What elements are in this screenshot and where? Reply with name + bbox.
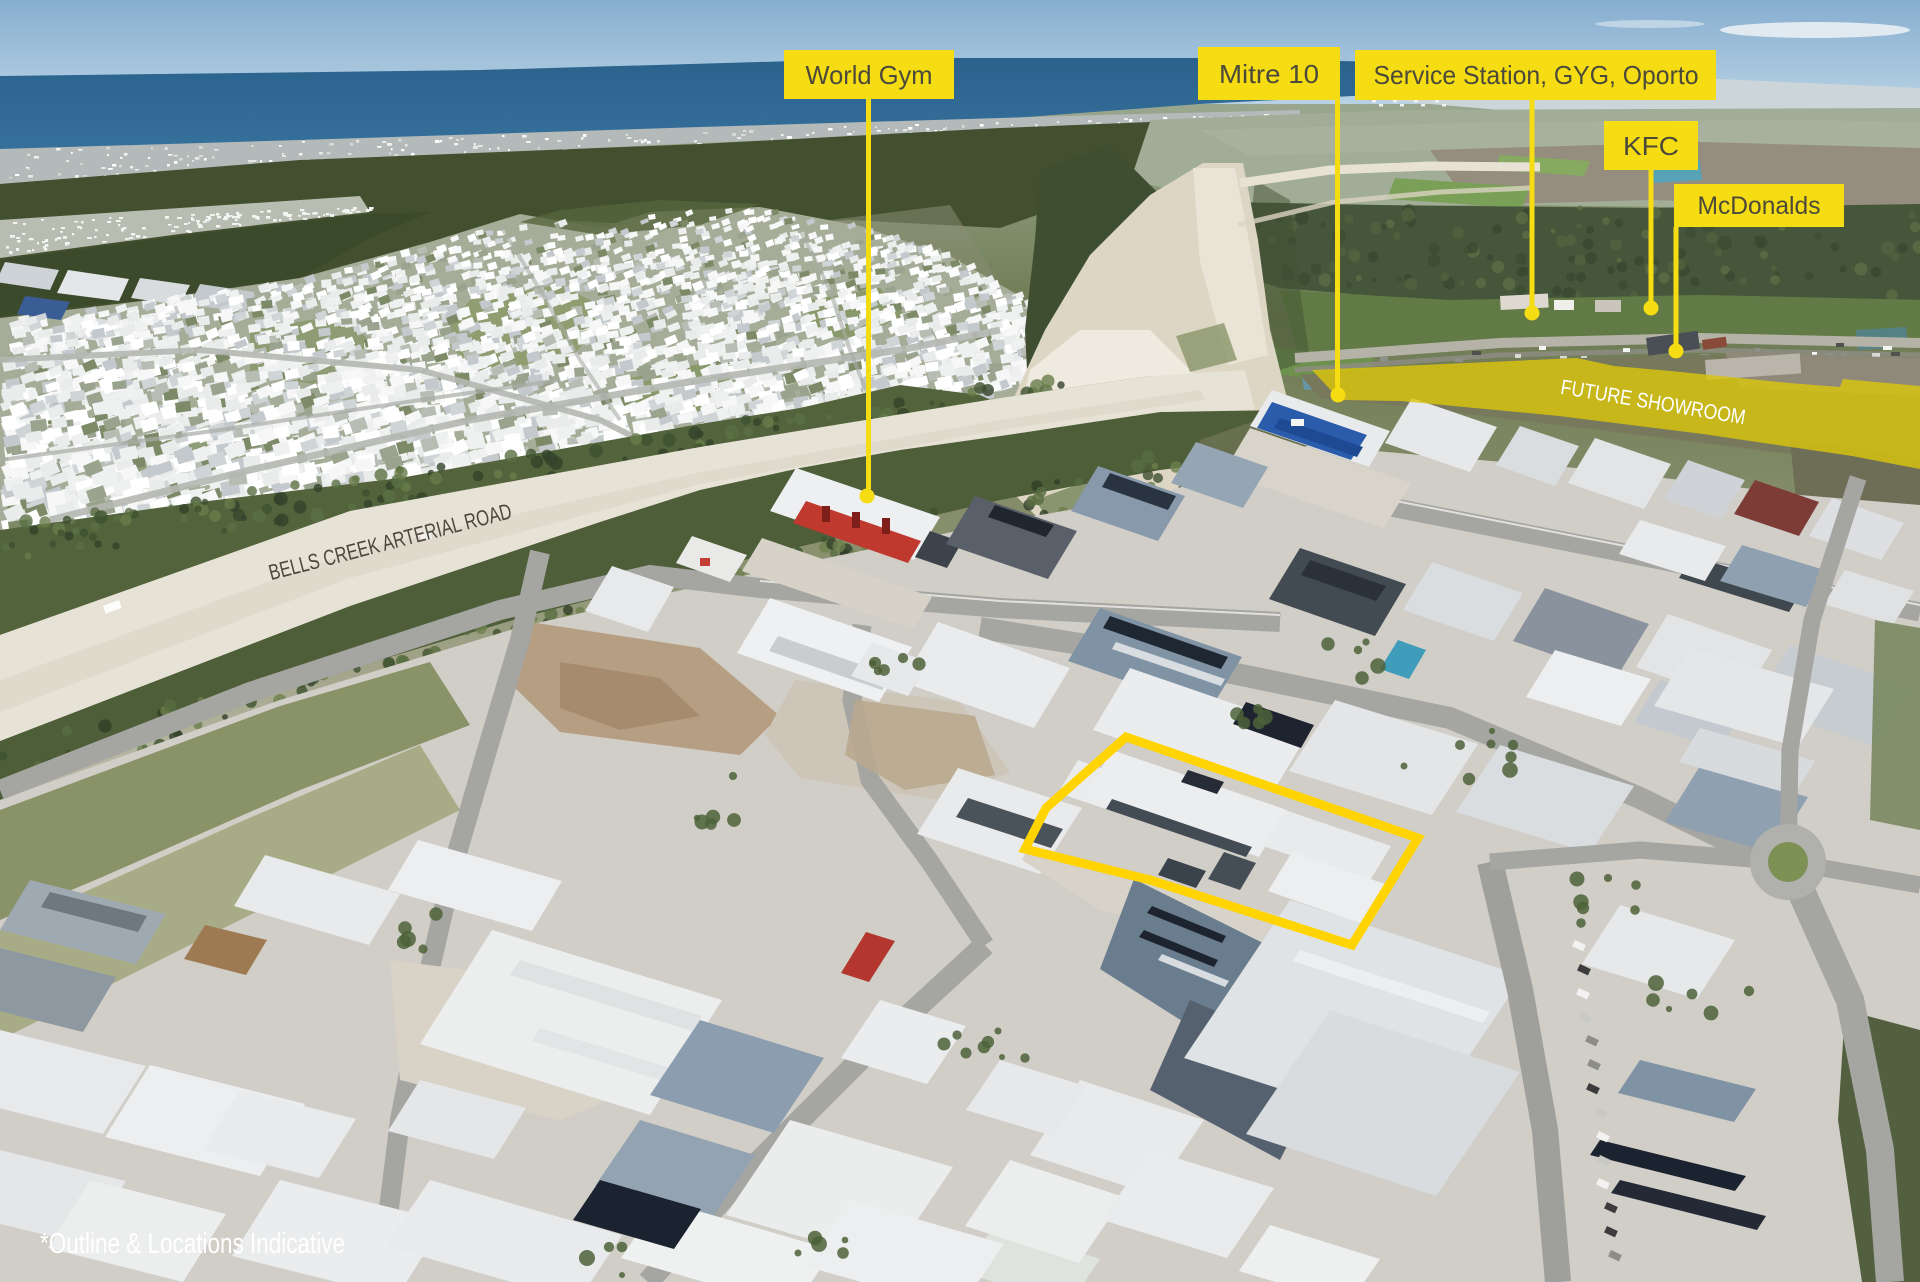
svg-text:World Gym: World Gym: [806, 60, 933, 90]
svg-text:McDonalds: McDonalds: [1698, 192, 1821, 220]
svg-text:KFC: KFC: [1623, 131, 1679, 161]
svg-text:*Outline & Locations Indicativ: *Outline & Locations Indicative: [40, 1228, 345, 1260]
svg-text:Mitre 10: Mitre 10: [1219, 59, 1319, 89]
svg-text:Service Station, GYG, Oporto: Service Station, GYG, Oporto: [1374, 60, 1699, 90]
